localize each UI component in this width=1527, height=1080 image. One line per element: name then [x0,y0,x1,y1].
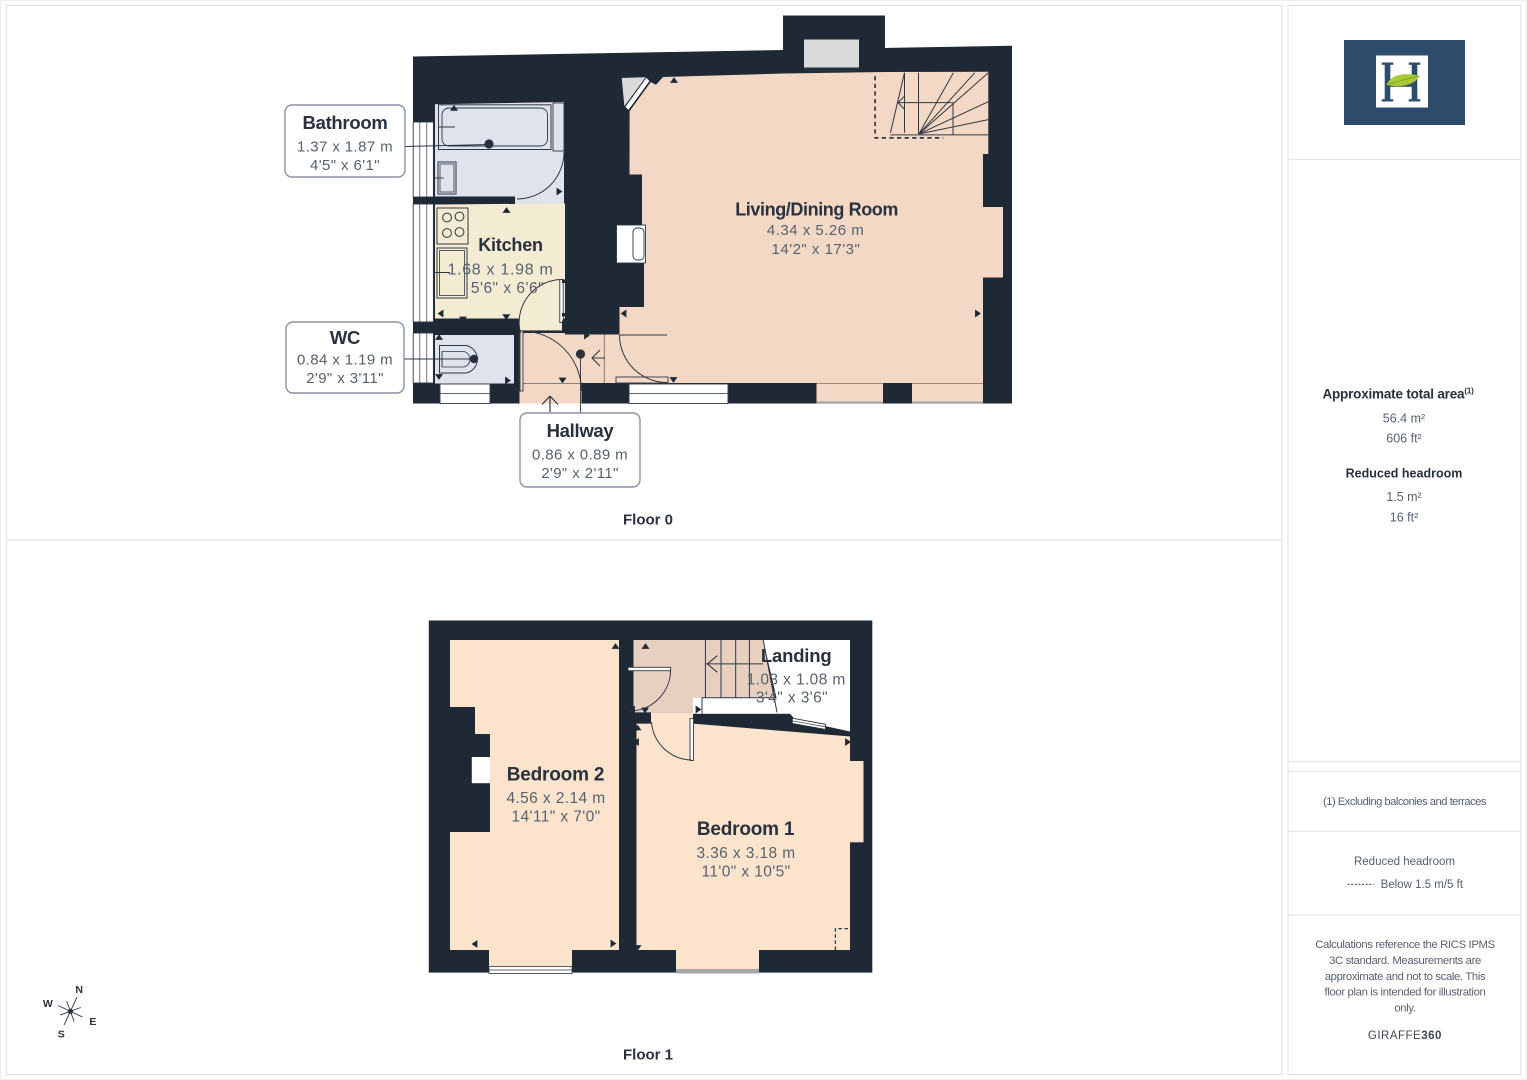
svg-text:4.56 x 2.14 m: 4.56 x 2.14 m [506,790,605,807]
svg-text:Below 1.5 m/5 ft: Below 1.5 m/5 ft [1381,879,1464,891]
svg-text:Landing: Landing [761,645,832,666]
svg-text:16 ft²: 16 ft² [1390,511,1419,525]
svg-text:only.: only. [1394,1003,1415,1015]
svg-text:W: W [43,998,53,1010]
svg-text:floor plan is intended for ill: floor plan is intended for illustration [1325,987,1486,999]
svg-text:11'0" x 10'5": 11'0" x 10'5" [701,864,790,881]
svg-text:Living/Dining Room: Living/Dining Room [735,200,898,220]
svg-text:Hallway: Hallway [547,420,615,441]
svg-text:Floor 0: Floor 0 [623,512,673,529]
svg-text:Calculations reference the RIC: Calculations reference the RICS IPMS [1315,939,1495,951]
svg-text:approximate and not to scale.: approximate and not to scale. This [1325,971,1486,983]
svg-text:4.34 x 5.26 m: 4.34 x 5.26 m [767,222,864,239]
svg-text:606 ft²: 606 ft² [1386,432,1421,446]
svg-text:14'11" x 7'0": 14'11" x 7'0" [511,809,600,826]
svg-text:Kitchen: Kitchen [478,235,543,255]
svg-text:Floor 1: Floor 1 [623,1047,673,1064]
svg-text:0.86 x 0.89 m: 0.86 x 0.89 m [532,447,628,464]
svg-text:1.03 x 1.08 m: 1.03 x 1.08 m [747,672,846,689]
svg-text:WC: WC [330,327,360,348]
svg-text:14'2" x 17'3": 14'2" x 17'3" [772,241,861,258]
svg-text:Reduced headroom: Reduced headroom [1346,467,1463,481]
svg-text:1.37 x 1.87 m: 1.37 x 1.87 m [297,139,393,156]
svg-text:4'5" x 6'1": 4'5" x 6'1" [310,157,380,174]
svg-text:Bedroom 2: Bedroom 2 [507,765,604,786]
svg-text:1.5 m²: 1.5 m² [1386,490,1421,504]
svg-text:Bedroom 1: Bedroom 1 [697,819,795,840]
svg-text:3C standard. Measurements are: 3C standard. Measurements are [1329,955,1481,967]
svg-text:2'9" x 2'11": 2'9" x 2'11" [541,465,619,482]
svg-text:Approximate total area(1): Approximate total area(1) [1322,387,1474,402]
svg-text:0.84 x 1.19 m: 0.84 x 1.19 m [297,352,393,369]
svg-text:S: S [58,1029,65,1041]
svg-text:Bathroom: Bathroom [303,112,388,133]
svg-text:3'4" x 3'6": 3'4" x 3'6" [756,690,828,707]
svg-text:Reduced headroom: Reduced headroom [1354,856,1455,868]
svg-text:2'9" x 3'11": 2'9" x 3'11" [306,370,384,387]
svg-text:5'6" x 6'6": 5'6" x 6'6" [471,280,544,297]
svg-text:N: N [75,984,83,996]
svg-text:3.36 x 3.18 m: 3.36 x 3.18 m [696,845,795,862]
svg-text:(1) Excluding balconies and te: (1) Excluding balconies and terraces [1323,796,1487,808]
svg-text:56.4 m²: 56.4 m² [1383,412,1425,426]
svg-text:1.68 x 1.98 m: 1.68 x 1.98 m [447,262,553,279]
svg-text:GIRAFFE360: GIRAFFE360 [1368,1030,1442,1042]
svg-text:E: E [89,1016,96,1028]
